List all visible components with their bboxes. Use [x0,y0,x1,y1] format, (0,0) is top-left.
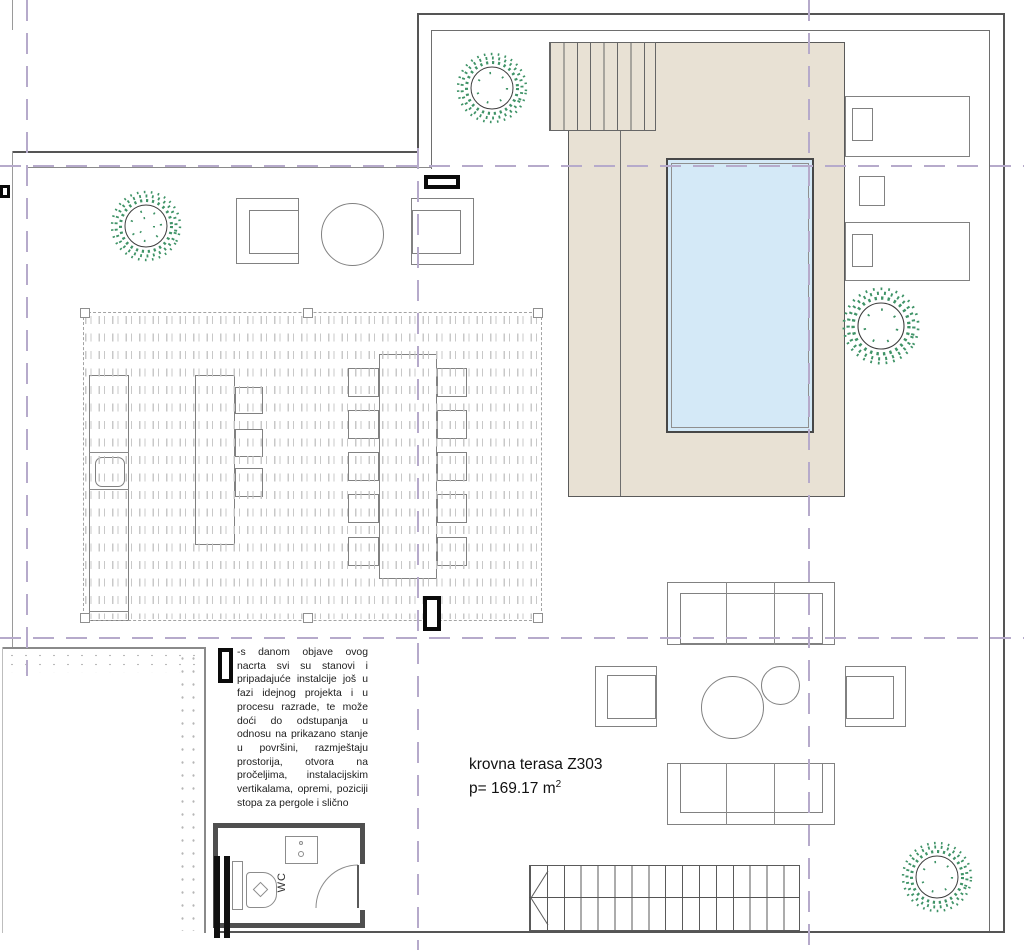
pergola-outline [83,312,542,621]
boundary-top-inner [432,30,990,31]
deck-steps [549,42,656,131]
sofa-divider [774,582,775,645]
armchair-seat [249,210,299,254]
tree-icon [450,46,534,130]
column-marker [424,175,460,189]
wc-sink-faucet [298,851,304,857]
axis-line-horizontal [0,637,1024,639]
round-table [321,203,384,266]
staircase [529,865,800,931]
boundary-left-top-inner [27,167,432,168]
boundary-left-top-outer [12,151,418,153]
room-area-superscript: 2 [556,779,562,790]
side-table [859,176,885,206]
gravel-stipple-right [177,652,203,931]
room-label: krovna terasa Z303 p= 169.17 m2 [469,755,603,799]
boundary-right-outer [1003,13,1005,933]
lounger-pillow [852,108,873,141]
boundary-bottom [215,931,1004,933]
pergola-post [80,613,90,623]
sofa-divider [726,582,727,645]
disclaimer-note: -s danom objave ovog nacrta svi su stano… [237,646,368,810]
roof-terrace-floor-plan: WC -s danom objave ovog nacrta svi su st… [0,0,1024,950]
pergola-post [533,613,543,623]
sofa-divider [774,763,775,825]
wc-door-opening [358,864,366,910]
armchair-seat [412,210,461,254]
boundary-top-outer [418,13,1005,15]
column-marker [218,648,233,683]
pergola-post [303,308,313,318]
boundary-upper-left-outer [417,13,419,153]
column-marker [0,185,10,198]
deck-inner-line [620,131,621,496]
coffee-table-large [701,676,764,739]
wc-door-icon [315,864,359,909]
boundary-top-left-stub [12,0,13,30]
gravel-border-top [2,647,205,649]
tree-icon [104,184,188,268]
boundary-upper-left-inner [431,30,432,169]
pool-rim [671,163,809,428]
tree-icon [835,280,927,372]
gravel-border-right [204,647,206,933]
toilet-tank [232,861,243,910]
wall-marker [214,856,220,938]
pergola-post [533,308,543,318]
stair-direction-arrow [530,868,552,928]
sofa-divider [726,763,727,825]
wall-marker [224,856,230,938]
axis-line-vertical [417,148,419,950]
wc-sink-drain [299,841,303,845]
axis-line-vertical [26,0,28,676]
room-title: krovna terasa Z303 [469,755,603,775]
gravel-stipple-top [5,651,202,673]
armchair-seat [846,676,894,719]
staircase-mid-line [529,897,800,898]
axis-line-horizontal [0,165,1024,167]
swimming-pool [666,158,814,433]
boundary-left-edge [12,151,13,648]
column-marker [423,596,441,631]
armchair-seat [607,675,656,719]
sofa-seat [680,763,823,813]
gravel-border-left [2,647,3,933]
wc-room-label: WC [276,872,288,892]
pergola-post [80,308,90,318]
lounger-pillow [852,234,873,267]
room-area: p= 169.17 m2 [469,775,603,799]
tree-icon [895,835,979,919]
axis-line-vertical [808,0,810,950]
pergola-post [303,613,313,623]
coffee-table-small [761,666,800,705]
